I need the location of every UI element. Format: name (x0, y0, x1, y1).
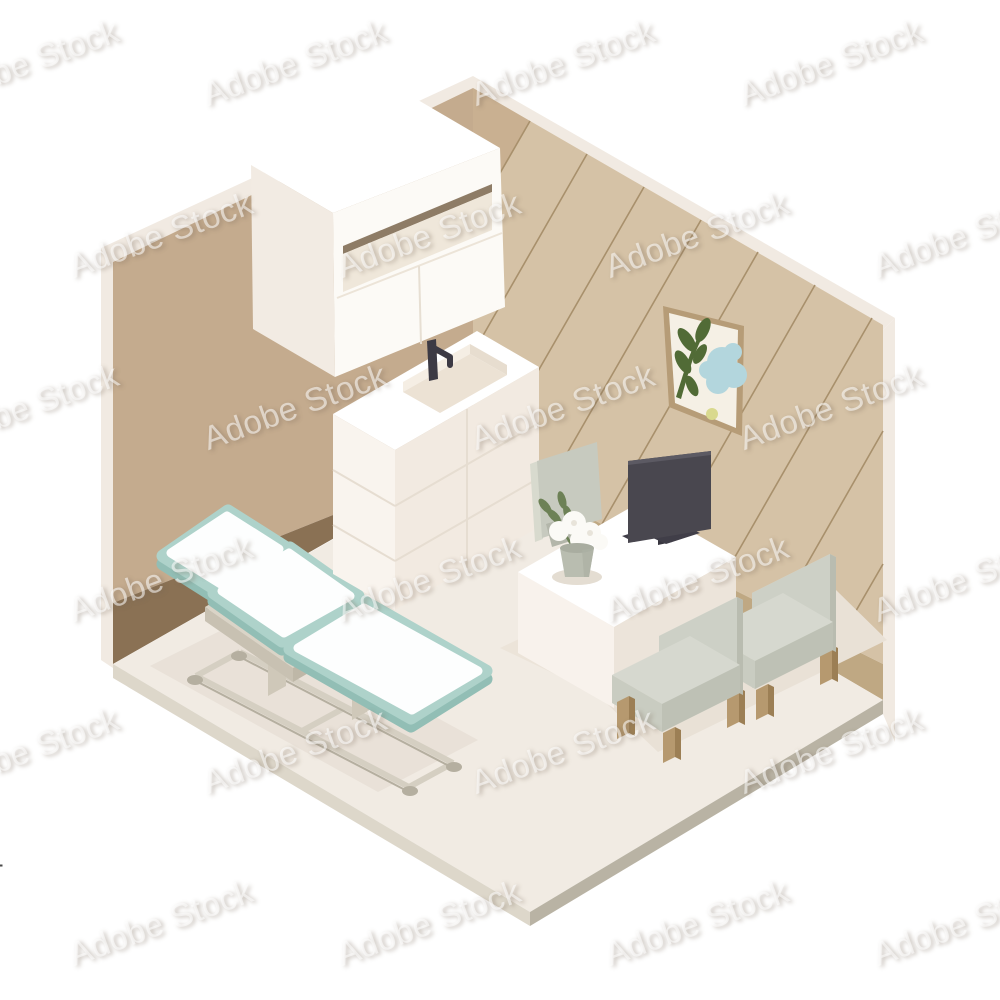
wall-edge-right-side (883, 318, 895, 742)
art-yellow-dot (706, 408, 718, 420)
wall-edge-left-side (101, 248, 113, 668)
chair-leg-side (629, 696, 635, 736)
chair-leg (617, 696, 629, 739)
stock-illustration-medical-room: Adobe StockAdobe StockAdobe StockAdobe S… (0, 0, 1000, 1000)
chair-leg-side (675, 727, 681, 760)
monitor (622, 451, 711, 545)
monitor-screen-back (628, 451, 711, 543)
chair-leg (663, 727, 675, 763)
stock-id-watermark: Adobe Stock | #816901616 (0, 770, 4, 970)
chair-leg-side (768, 684, 774, 717)
isometric-room-illustration (0, 0, 1000, 1000)
chair-leg (756, 684, 768, 720)
